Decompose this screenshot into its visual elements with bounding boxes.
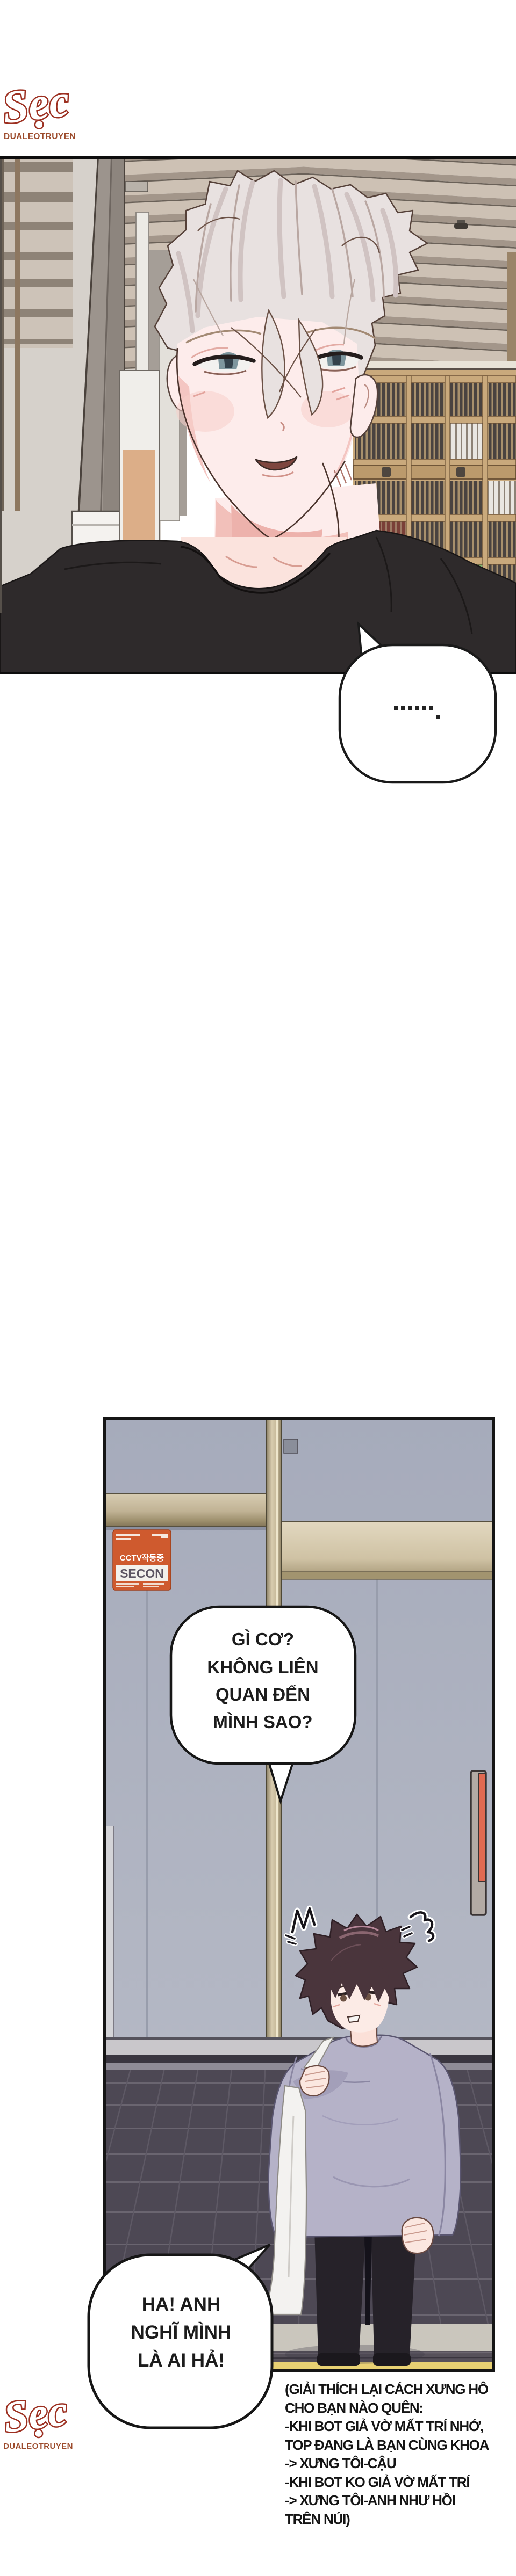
svg-text:TRÊN NÚI): TRÊN NÚI) — [285, 2511, 350, 2527]
svg-text:DUALEOTRUYEN: DUALEOTRUYEN — [4, 132, 76, 141]
svg-text:Sẹc: Sẹc — [0, 74, 72, 133]
svg-text:(GIẢI THÍCH LẠI CÁCH XƯNG HÔ: (GIẢI THÍCH LẠI CÁCH XƯNG HÔ — [285, 2381, 489, 2397]
svg-text:QUAN ĐẾN: QUAN ĐẾN — [216, 1685, 310, 1704]
svg-text:KHÔNG LIÊN: KHÔNG LIÊN — [207, 1657, 318, 1677]
svg-text:SECON: SECON — [120, 1566, 164, 1580]
svg-text:HA! ANH: HA! ANH — [142, 2294, 220, 2315]
svg-text:LÀ AI HẢ!: LÀ AI HẢ! — [138, 2349, 225, 2371]
svg-text:TOP ĐANG LÀ BẠN CÙNG KHOA: TOP ĐANG LÀ BẠN CÙNG KHOA — [285, 2437, 490, 2453]
svg-text:Sẹc: Sẹc — [1, 2385, 70, 2442]
svg-text:CHO BẠN NÀO QUÊN:: CHO BẠN NÀO QUÊN: — [285, 2400, 423, 2416]
svg-text:MÌNH SAO?: MÌNH SAO? — [213, 1712, 312, 1732]
svg-text:GÌ CƠ?: GÌ CƠ? — [232, 1629, 294, 1649]
svg-text:-KHI BOT KO GIẢ VỜ MẤT TRÍ: -KHI BOT KO GIẢ VỜ MẤT TRÍ — [285, 2474, 470, 2490]
svg-text:-> XƯNG TÔI-CẬU: -> XƯNG TÔI-CẬU — [285, 2455, 396, 2471]
svg-text:-> XƯNG TÔI-ANH NHƯ HỒI: -> XƯNG TÔI-ANH NHƯ HỒI — [285, 2492, 455, 2508]
svg-text:CCTV작동중: CCTV작동중 — [120, 1553, 164, 1563]
svg-text:DUALEOTRUYEN: DUALEOTRUYEN — [3, 2442, 73, 2451]
svg-text:-KHI BOT GIẢ VỜ MẤT TRÍ NHỚ,: -KHI BOT GIẢ VỜ MẤT TRÍ NHỚ, — [285, 2418, 483, 2434]
svg-text:NGHĨ MÌNH: NGHĨ MÌNH — [131, 2321, 232, 2343]
